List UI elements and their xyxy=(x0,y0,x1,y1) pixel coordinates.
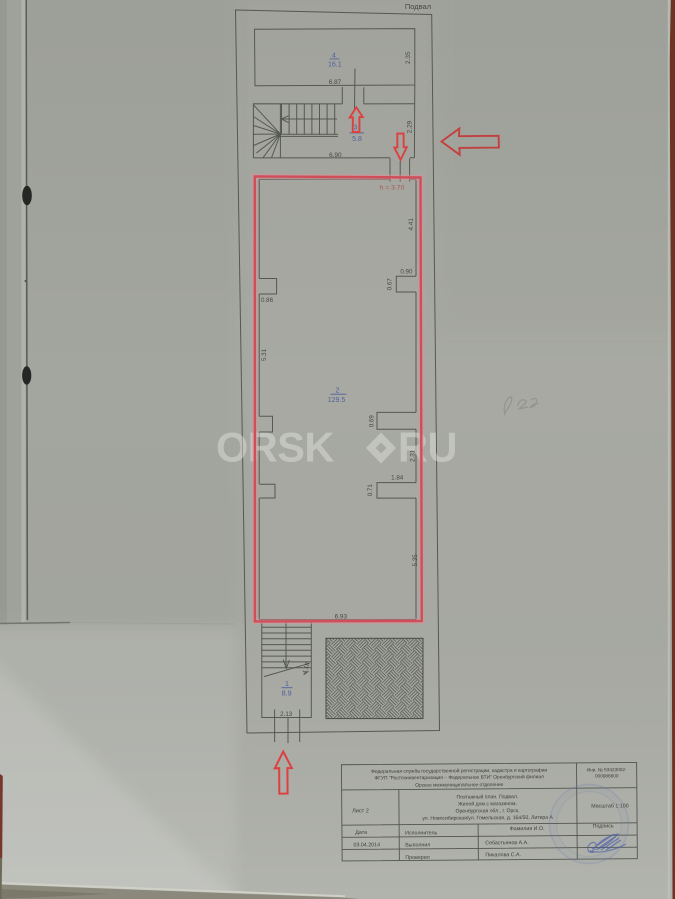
svg-text:8.9: 8.9 xyxy=(282,689,292,698)
svg-text:Подвал: Подвал xyxy=(405,2,431,11)
svg-text:Жилой дом с магазином.: Жилой дом с магазином. xyxy=(458,800,517,807)
svg-text:3: 3 xyxy=(353,125,357,132)
svg-text:Орское межмуниципальное отделе: Орское межмуниципальное отделение xyxy=(415,782,504,789)
svg-text:Себастьянов А.А.: Себастьянов А.А. xyxy=(485,840,528,846)
svg-text:0.71: 0.71 xyxy=(367,484,374,497)
svg-text:Пикалова С.А.: Пикалова С.А. xyxy=(485,852,521,858)
svg-text:16.1: 16.1 xyxy=(328,62,342,69)
svg-text:Подпись: Подпись xyxy=(593,823,614,829)
svg-text:ORSK: ORSK xyxy=(216,424,334,471)
svg-text:2: 2 xyxy=(336,386,340,395)
svg-text:03.04.2014: 03.04.2014 xyxy=(353,842,380,848)
svg-text:000986600: 000986600 xyxy=(595,773,619,778)
svg-text:0.67: 0.67 xyxy=(387,278,394,291)
svg-text:5.35: 5.35 xyxy=(412,554,419,567)
svg-text:Исполнитель: Исполнитель xyxy=(405,830,437,836)
svg-text:Инв. № 53423002-: Инв. № 53423002- xyxy=(587,767,627,772)
svg-text:ул. Новосибирская/ул. Гомельск: ул. Новосибирская/ул. Гомельская, д. 164… xyxy=(422,815,553,822)
svg-text:h = 3.70: h = 3.70 xyxy=(380,184,405,191)
svg-text:1: 1 xyxy=(285,681,289,688)
svg-text:6.90: 6.90 xyxy=(329,152,342,159)
svg-text:2.29: 2.29 xyxy=(407,120,414,133)
svg-text:Дата: Дата xyxy=(355,830,367,836)
svg-text:4: 4 xyxy=(332,53,336,60)
svg-text:129.5: 129.5 xyxy=(328,397,346,404)
svg-text:0.90: 0.90 xyxy=(400,269,413,276)
svg-text:0.86: 0.86 xyxy=(261,297,274,304)
svg-text:0.69: 0.69 xyxy=(369,415,376,428)
svg-text:2.13: 2.13 xyxy=(280,711,293,718)
svg-text:Оренбургская обл., г. Орск,: Оренбургская обл., г. Орск, xyxy=(455,808,519,815)
svg-text:4.41: 4.41 xyxy=(408,218,415,231)
svg-text:Проверил: Проверил xyxy=(405,855,429,861)
svg-text:Выполнил: Выполнил xyxy=(405,842,430,848)
svg-text:Фамилия И.О.: Фамилия И.О. xyxy=(510,826,545,832)
svg-text:6.87: 6.87 xyxy=(329,79,342,86)
svg-text:5.31: 5.31 xyxy=(261,348,268,361)
svg-text:RU: RU xyxy=(398,424,457,471)
svg-text:2.35: 2.35 xyxy=(405,51,412,64)
svg-text:Поэтажный план. Подвал.: Поэтажный план. Подвал. xyxy=(457,793,519,800)
svg-text:1.84: 1.84 xyxy=(391,475,404,482)
svg-text:Лист 2: Лист 2 xyxy=(352,808,369,814)
svg-text:5.8: 5.8 xyxy=(352,136,362,143)
